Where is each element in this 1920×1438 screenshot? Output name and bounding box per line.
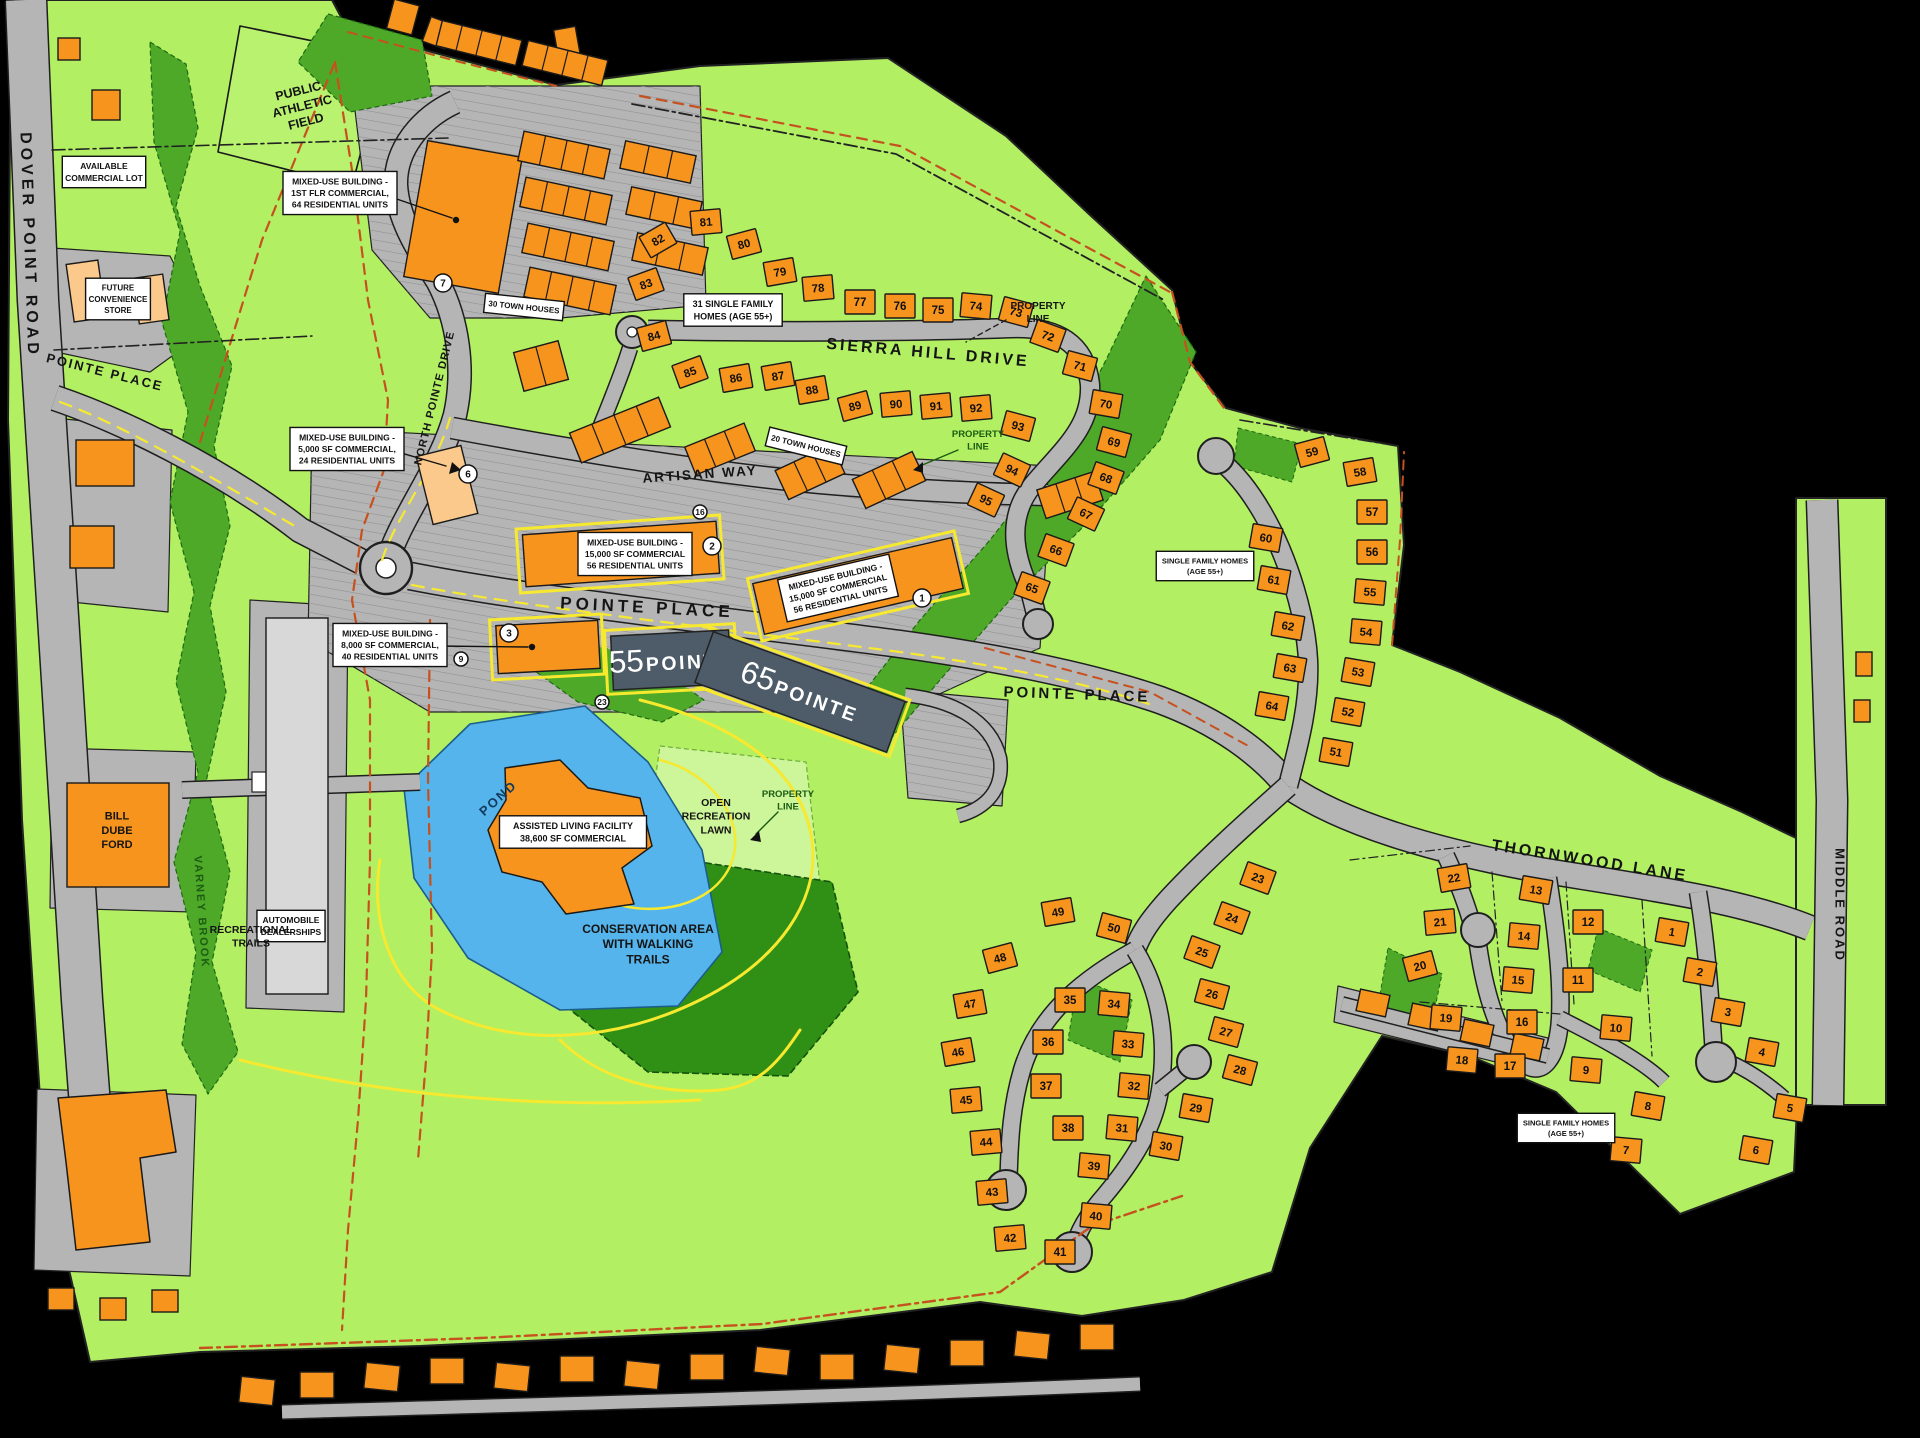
parking-count-16-value: 16 bbox=[695, 507, 705, 517]
lot-number-36: 36 bbox=[1042, 1037, 1055, 1049]
label-mixed-use-5000sf-text-line: MIXED-USE BUILDING - bbox=[299, 432, 395, 442]
sign-55-pointe-big: 55 bbox=[608, 643, 645, 680]
label-mixed-use-8000sf-text-line: MIXED-USE BUILDING - bbox=[342, 628, 438, 638]
site-plan-page: 6566676869707172737475767778798081828384… bbox=[0, 0, 1920, 1438]
offsite-bottom-houses bbox=[364, 1362, 401, 1391]
lot-number-60: 60 bbox=[1258, 532, 1273, 546]
lot-74: 74 bbox=[960, 293, 992, 320]
label-mixed-use-8000sf-text: MIXED-USE BUILDING -8,000 SF COMMERCIAL,… bbox=[341, 628, 439, 661]
label-property-line-south-text-line: PROPERTY bbox=[762, 789, 815, 800]
lot-number-53: 53 bbox=[1350, 666, 1365, 680]
label-assisted-living-text-line: ASSISTED LIVING FACILITY bbox=[513, 821, 633, 831]
culdesac-se-1 bbox=[1461, 913, 1495, 947]
lot-61: 61 bbox=[1257, 566, 1291, 595]
lot-number-18: 18 bbox=[1455, 1054, 1469, 1067]
leader-dot-building-3 bbox=[529, 644, 535, 650]
offsite-bottom-houses bbox=[300, 1372, 334, 1398]
lot-40: 40 bbox=[1080, 1203, 1112, 1230]
culdesac-sierra-end bbox=[1023, 609, 1053, 639]
lot-number-12: 12 bbox=[1582, 917, 1595, 929]
lot-18: 18 bbox=[1446, 1047, 1478, 1074]
lot-number-35: 35 bbox=[1064, 995, 1077, 1007]
lot-number-30: 30 bbox=[1158, 1140, 1173, 1154]
label-31-single-family-text-line: 31 SINGLE FAMILY bbox=[693, 299, 774, 309]
lot-58: 58 bbox=[1343, 458, 1377, 487]
lot-number-38: 38 bbox=[1062, 1123, 1075, 1135]
lot-87: 87 bbox=[761, 362, 795, 391]
lot-30: 30 bbox=[1149, 1132, 1183, 1161]
culdesac-se-2 bbox=[1696, 1042, 1736, 1082]
lot-2: 2 bbox=[1683, 958, 1717, 987]
building-number-6-value: 6 bbox=[465, 470, 471, 481]
offsite-bottom-houses bbox=[884, 1344, 921, 1373]
lot-number-86: 86 bbox=[729, 372, 744, 386]
lot-number-49: 49 bbox=[1051, 906, 1066, 920]
label-mixed-use-8000sf-text-line: 8,000 SF COMMERCIAL, bbox=[341, 640, 439, 650]
building-number-7-value: 7 bbox=[440, 279, 446, 290]
lot-number-57: 57 bbox=[1366, 507, 1379, 519]
label-bill-dube-ford-text-line: FORD bbox=[101, 839, 132, 851]
lot-number-7: 7 bbox=[1622, 1145, 1629, 1158]
lot-number-34: 34 bbox=[1107, 998, 1121, 1011]
lot-46: 46 bbox=[941, 1038, 975, 1067]
middle-road bbox=[1822, 500, 1832, 1105]
lot-70: 70 bbox=[1089, 390, 1123, 419]
label-mixed-use-64-units-text-line: 64 RESIDENTIAL UNITS bbox=[292, 200, 389, 210]
lot-19: 19 bbox=[1430, 1005, 1462, 1032]
label-mixed-use-64-units-text-line: MIXED-USE BUILDING - bbox=[292, 176, 388, 186]
lot-16: 16 bbox=[1507, 1010, 1537, 1034]
lot-91: 91 bbox=[920, 393, 952, 420]
lot-number-22: 22 bbox=[1447, 872, 1462, 886]
offsite-bottom-houses bbox=[430, 1358, 464, 1384]
label-mixed-use-15000sf-2: MIXED-USE BUILDING -15,000 SF COMMERCIAL… bbox=[578, 532, 692, 575]
offsite-bottom-houses bbox=[494, 1362, 531, 1391]
lot-number-14: 14 bbox=[1517, 930, 1531, 943]
lot-number-17: 17 bbox=[1504, 1061, 1517, 1073]
bottom-left-outbuilding-2 bbox=[100, 1298, 126, 1320]
offsite-bottom-houses bbox=[690, 1354, 724, 1380]
lot-number-42: 42 bbox=[1003, 1232, 1017, 1245]
building-number-2-value: 2 bbox=[709, 542, 715, 553]
label-mixed-use-5000sf-text-line: 5,000 SF COMMERCIAL, bbox=[298, 444, 396, 454]
lot-92: 92 bbox=[960, 395, 992, 422]
lot-number-77: 77 bbox=[854, 297, 867, 309]
label-property-line-ne-text-line: LINE bbox=[1027, 314, 1050, 325]
label-bill-dube-ford-text: BILLDUBEFORD bbox=[101, 811, 132, 851]
lot-number-47: 47 bbox=[963, 998, 978, 1012]
lot-number-31: 31 bbox=[1115, 1122, 1129, 1135]
lot-number-90: 90 bbox=[889, 398, 903, 411]
label-mixed-use-64-units-text: MIXED-USE BUILDING -1ST FLR COMMERCIAL,6… bbox=[291, 176, 389, 209]
lot-number-46: 46 bbox=[951, 1046, 966, 1060]
label-mixed-use-64-units-text-line: 1ST FLR COMMERCIAL, bbox=[291, 188, 389, 198]
lot-number-52: 52 bbox=[1340, 706, 1355, 720]
lot-1: 1 bbox=[1655, 918, 1689, 947]
area-open-recreation-lawn-text-line: LAWN bbox=[701, 824, 732, 836]
lot-39: 39 bbox=[1078, 1153, 1110, 1180]
middle-road-building-2 bbox=[1854, 700, 1870, 722]
label-available-commercial-lot: AVAILABLECOMMERCIAL LOT bbox=[62, 156, 145, 187]
lot-56: 56 bbox=[1357, 540, 1387, 564]
west-commercial-building-1 bbox=[76, 440, 134, 486]
west-commercial-building-2 bbox=[70, 526, 114, 568]
lot-51: 51 bbox=[1319, 738, 1353, 767]
offsite-bottom-houses bbox=[820, 1354, 854, 1380]
lot-77: 77 bbox=[845, 290, 875, 314]
lot-4: 4 bbox=[1745, 1038, 1779, 1067]
lot-13: 13 bbox=[1519, 876, 1553, 905]
lot-number-32: 32 bbox=[1127, 1080, 1141, 1093]
lot-number-74: 74 bbox=[969, 300, 983, 313]
lot-number-54: 54 bbox=[1359, 626, 1373, 639]
lot-35: 35 bbox=[1055, 988, 1085, 1012]
leader-building-3 bbox=[436, 646, 528, 647]
lot-number-70: 70 bbox=[1098, 398, 1113, 412]
lot-number-79: 79 bbox=[773, 266, 788, 280]
lot-8: 8 bbox=[1631, 1092, 1665, 1121]
label-single-family-se-text-line: SINGLE FAMILY HOMES bbox=[1523, 1118, 1609, 1127]
label-bill-dube-ford-text-line: DUBE bbox=[101, 825, 132, 837]
lot-number-21: 21 bbox=[1433, 916, 1447, 929]
lot-12: 12 bbox=[1573, 910, 1603, 934]
label-mixed-use-64-units: MIXED-USE BUILDING -1ST FLR COMMERCIAL,6… bbox=[283, 171, 397, 214]
area-conservation-text-line: TRAILS bbox=[626, 952, 669, 966]
lot-6: 6 bbox=[1739, 1136, 1773, 1165]
lot-63: 63 bbox=[1273, 654, 1307, 683]
lot-number-11: 11 bbox=[1572, 975, 1585, 987]
lot-number-87: 87 bbox=[771, 370, 786, 384]
lot-41: 41 bbox=[1045, 1240, 1075, 1264]
label-available-commercial-lot-text-line: AVAILABLE bbox=[80, 161, 128, 171]
lot-60: 60 bbox=[1249, 524, 1283, 553]
lot-42: 42 bbox=[994, 1225, 1026, 1252]
lot-15: 15 bbox=[1502, 967, 1534, 994]
lot-11: 11 bbox=[1563, 968, 1593, 992]
lot-17: 17 bbox=[1495, 1054, 1525, 1078]
lot-number-56: 56 bbox=[1366, 547, 1379, 559]
area-open-recreation-lawn-text-line: OPEN bbox=[701, 797, 731, 809]
lot-number-44: 44 bbox=[979, 1136, 993, 1149]
label-single-family-east-text-line: (AGE 55+) bbox=[1187, 567, 1224, 576]
lot-33: 33 bbox=[1112, 1031, 1144, 1058]
offsite-bottom-houses bbox=[1014, 1330, 1051, 1359]
label-future-convenience-store-text-line: CONVENIENCE bbox=[89, 295, 148, 304]
label-mixed-use-5000sf-text-line: 24 RESIDENTIAL UNITS bbox=[299, 456, 396, 466]
lot-number-9: 9 bbox=[1582, 1065, 1589, 1078]
available-lot-building-2 bbox=[58, 38, 80, 60]
lot-34: 34 bbox=[1098, 991, 1130, 1018]
label-future-convenience-store-text-line: FUTURE bbox=[102, 284, 135, 293]
offsite-bottom-road bbox=[282, 1384, 1140, 1412]
lot-90: 90 bbox=[880, 391, 912, 418]
lot-number-91: 91 bbox=[929, 400, 943, 413]
lot-number-10: 10 bbox=[1609, 1022, 1623, 1035]
label-single-family-east: SINGLE FAMILY HOMES(AGE 55+) bbox=[1156, 551, 1254, 580]
lot-number-55: 55 bbox=[1363, 586, 1377, 599]
offsite-top-house-1 bbox=[387, 0, 420, 35]
lot-62: 62 bbox=[1271, 612, 1305, 641]
lot-47: 47 bbox=[953, 990, 987, 1019]
area-recreational-trails-text-line: TRAILS bbox=[232, 938, 270, 950]
lot-38: 38 bbox=[1053, 1116, 1083, 1140]
bottom-left-outbuilding-1 bbox=[48, 1288, 74, 1310]
area-open-recreation-lawn-text-line: RECREATION bbox=[682, 811, 751, 823]
label-property-line-north-text-line: PROPERTY bbox=[952, 429, 1005, 440]
building-number-1-value: 1 bbox=[919, 594, 925, 605]
lot-9: 9 bbox=[1570, 1057, 1602, 1084]
offsite-bottom-houses bbox=[239, 1376, 276, 1405]
lot-22: 22 bbox=[1437, 864, 1471, 893]
lot-number-15: 15 bbox=[1511, 974, 1525, 987]
lot-75: 75 bbox=[923, 298, 953, 322]
lot-number-16: 16 bbox=[1516, 1017, 1529, 1029]
available-lot-building-1 bbox=[92, 90, 120, 120]
lot-52: 52 bbox=[1331, 698, 1365, 727]
lot-76: 76 bbox=[885, 294, 915, 318]
offsite-bottom-houses bbox=[1080, 1324, 1114, 1350]
sierra-mini-center bbox=[627, 327, 637, 337]
label-assisted-living: ASSISTED LIVING FACILITY38,600 SF COMMER… bbox=[500, 816, 647, 848]
street-middle-road: MIDDLE ROAD bbox=[1832, 848, 1847, 962]
lot-81: 81 bbox=[690, 209, 722, 236]
leader-dot-building-7 bbox=[453, 217, 459, 223]
label-future-convenience-store-text-line: STORE bbox=[104, 306, 132, 315]
label-property-line-south-text-line: LINE bbox=[777, 802, 799, 813]
parking-count-23-value: 23 bbox=[597, 697, 607, 707]
lot-29: 29 bbox=[1179, 1094, 1213, 1123]
lot-number-45: 45 bbox=[959, 1094, 973, 1107]
label-single-family-se: SINGLE FAMILY HOMES(AGE 55+) bbox=[1517, 1113, 1615, 1142]
street-middle-road-text-line: MIDDLE ROAD bbox=[1832, 848, 1847, 962]
parking-count-9-value: 9 bbox=[459, 654, 464, 664]
label-mixed-use-5000sf: MIXED-USE BUILDING -5,000 SF COMMERCIAL,… bbox=[290, 427, 404, 470]
area-recreational-trails-text-line: RECREATIONAL bbox=[210, 924, 293, 936]
lot-86: 86 bbox=[719, 364, 753, 393]
lot-55: 55 bbox=[1354, 579, 1386, 606]
label-mixed-use-15000sf-2-text-line: 56 RESIDENTIAL UNITS bbox=[587, 561, 684, 571]
culdesac-south-3 bbox=[1177, 1045, 1211, 1079]
lot-44: 44 bbox=[970, 1129, 1002, 1156]
area-conservation-text-line: WITH WALKING bbox=[603, 937, 694, 951]
building-number-3-value: 3 bbox=[506, 629, 512, 640]
label-single-family-east-text-line: SINGLE FAMILY HOMES bbox=[1162, 556, 1248, 565]
lot-21: 21 bbox=[1424, 909, 1456, 936]
bottom-left-outbuilding-3 bbox=[152, 1290, 178, 1312]
middle-road-building-1 bbox=[1856, 652, 1872, 676]
lot-31: 31 bbox=[1106, 1115, 1138, 1142]
label-future-convenience-store: FUTURECONVENIENCESTORE bbox=[86, 278, 151, 320]
label-bill-dube-ford-text-line: BILL bbox=[105, 811, 130, 823]
label-mixed-use-15000sf-2-text-line: 15,000 SF COMMERCIAL bbox=[585, 549, 685, 559]
lot-number-63: 63 bbox=[1282, 662, 1297, 676]
street-middle-road-text: MIDDLE ROAD bbox=[1832, 848, 1847, 962]
lot-37: 37 bbox=[1031, 1074, 1061, 1098]
lot-64: 64 bbox=[1255, 692, 1289, 721]
lot-number-92: 92 bbox=[969, 402, 983, 415]
lot-number-39: 39 bbox=[1087, 1160, 1101, 1173]
lot-57: 57 bbox=[1357, 500, 1387, 524]
offsite-bottom-houses bbox=[950, 1340, 984, 1366]
lot-number-33: 33 bbox=[1121, 1038, 1135, 1051]
lot-5: 5 bbox=[1773, 1094, 1807, 1123]
lot-88: 88 bbox=[795, 376, 829, 405]
lot-14: 14 bbox=[1508, 923, 1540, 950]
label-mixed-use-15000sf-2-text: MIXED-USE BUILDING -15,000 SF COMMERCIAL… bbox=[585, 537, 685, 570]
lot-45: 45 bbox=[950, 1087, 982, 1114]
lot-79: 79 bbox=[763, 258, 797, 287]
lot-3: 3 bbox=[1711, 998, 1745, 1027]
lot-54: 54 bbox=[1350, 619, 1382, 646]
lot-number-37: 37 bbox=[1040, 1081, 1053, 1093]
label-31-single-family-text-line: HOMES (AGE 55+) bbox=[694, 311, 773, 321]
label-mixed-use-15000sf-2-text-line: MIXED-USE BUILDING - bbox=[587, 537, 683, 547]
label-single-family-se-text-line: (AGE 55+) bbox=[1548, 1129, 1585, 1138]
lot-number-19: 19 bbox=[1439, 1012, 1453, 1025]
roundabout-center bbox=[376, 558, 396, 578]
lot-53: 53 bbox=[1341, 658, 1375, 687]
lot-number-78: 78 bbox=[811, 282, 825, 295]
label-available-commercial-lot-text-line: COMMERCIAL LOT bbox=[65, 173, 144, 183]
lot-number-13: 13 bbox=[1528, 884, 1543, 898]
lot-78: 78 bbox=[802, 275, 834, 302]
lot-43: 43 bbox=[976, 1179, 1008, 1206]
lot-number-41: 41 bbox=[1054, 1247, 1067, 1259]
label-31-single-family: 31 SINGLE FAMILYHOMES (AGE 55+) bbox=[684, 294, 782, 326]
lot-number-81: 81 bbox=[699, 216, 713, 229]
lot-number-76: 76 bbox=[894, 301, 907, 313]
label-property-line-ne-text-line: PROPERTY bbox=[1010, 301, 1065, 312]
lot-10: 10 bbox=[1600, 1015, 1632, 1042]
site-plan-svg: 6566676869707172737475767778798081828384… bbox=[0, 0, 1920, 1438]
label-mixed-use-5000sf-text: MIXED-USE BUILDING -5,000 SF COMMERCIAL,… bbox=[298, 432, 396, 465]
area-conservation-text-line: CONSERVATION AREA bbox=[582, 922, 714, 936]
lot-number-62: 62 bbox=[1280, 620, 1295, 634]
lot-36: 36 bbox=[1033, 1030, 1063, 1054]
label-bill-dube-ford: BILLDUBEFORD bbox=[101, 811, 132, 851]
label-mixed-use-8000sf-text-line: 40 RESIDENTIAL UNITS bbox=[342, 652, 439, 662]
label-assisted-living-text-line: 38,600 SF COMMERCIAL bbox=[520, 833, 627, 843]
offsite-bottom-houses bbox=[754, 1346, 791, 1375]
offsite-bottom-houses bbox=[560, 1356, 594, 1382]
label-mixed-use-8000sf: MIXED-USE BUILDING -8,000 SF COMMERCIAL,… bbox=[333, 623, 447, 666]
lot-number-40: 40 bbox=[1089, 1210, 1103, 1223]
label-property-line-north-text-line: LINE bbox=[967, 442, 989, 453]
lot-number-75: 75 bbox=[932, 305, 945, 317]
culdesac-east-top bbox=[1198, 438, 1234, 474]
lot-32: 32 bbox=[1118, 1073, 1150, 1100]
offsite-bottom-houses bbox=[624, 1360, 661, 1389]
lot-49: 49 bbox=[1041, 898, 1075, 927]
lot-number-43: 43 bbox=[985, 1186, 999, 1199]
lot-number-29: 29 bbox=[1188, 1102, 1203, 1116]
